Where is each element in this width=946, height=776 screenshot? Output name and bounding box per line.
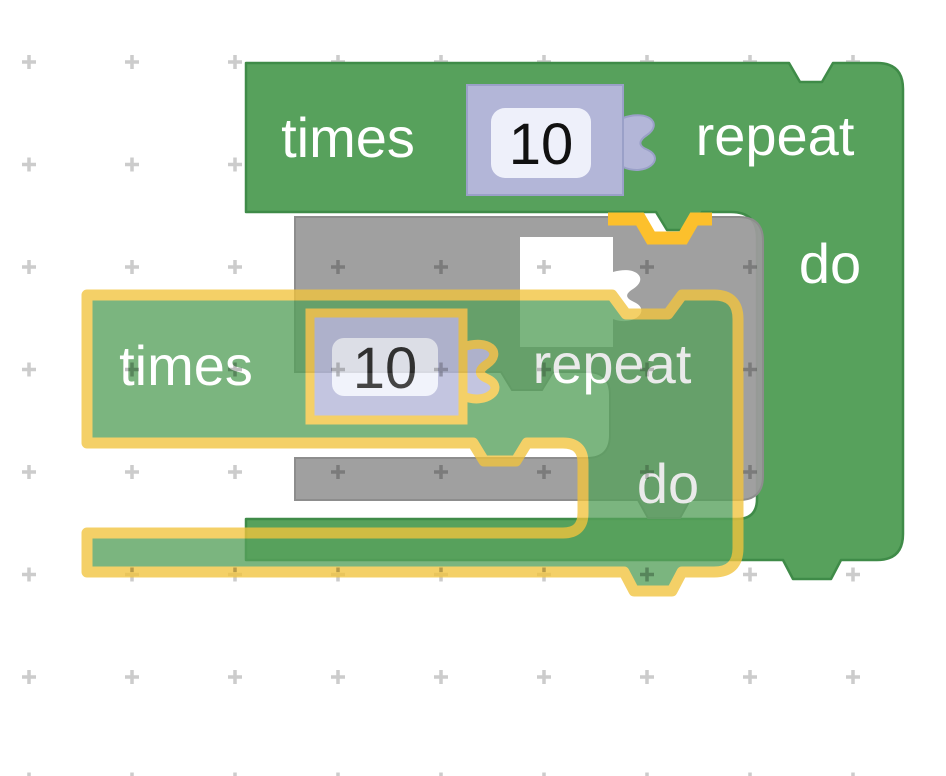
do-label: do — [799, 232, 861, 295]
count-value[interactable]: 10 — [509, 112, 574, 177]
workspace-canvas[interactable]: times 10 repeat do times 10 repeat do — [0, 0, 946, 776]
blockly-workspace[interactable]: times 10 repeat do times 10 repeat do — [0, 0, 946, 776]
repeat-label: repeat — [696, 104, 855, 167]
times-label: times — [281, 106, 415, 169]
